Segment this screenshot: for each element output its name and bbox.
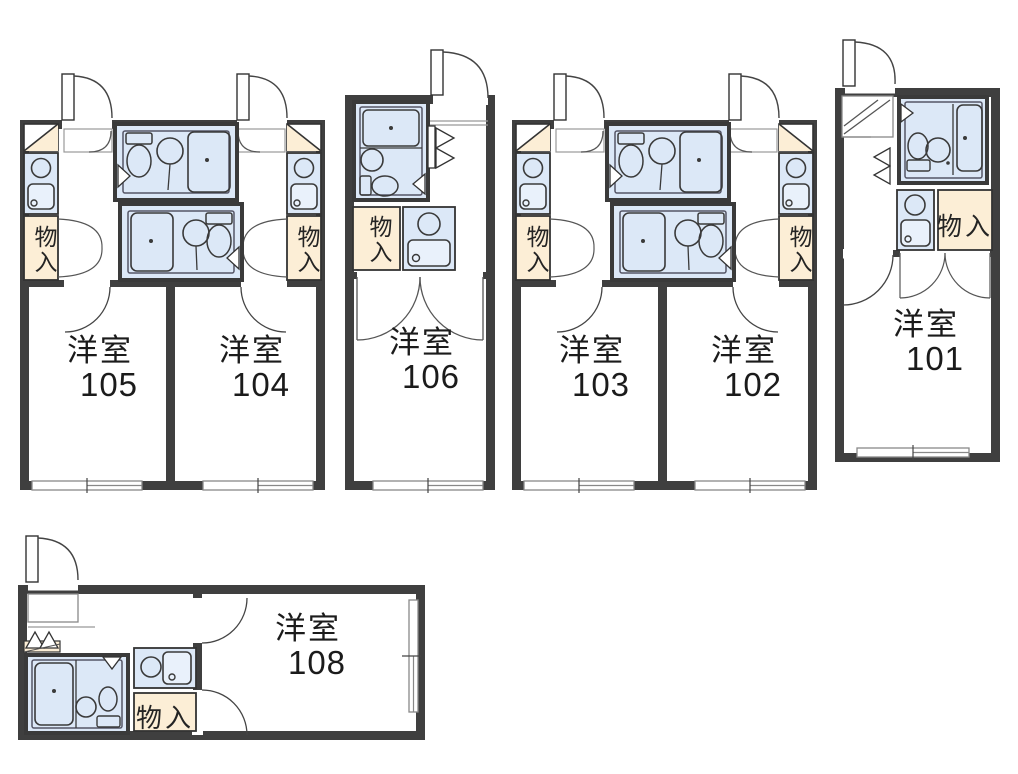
bathroom-101	[899, 97, 987, 183]
room-door-arc-101	[843, 255, 893, 305]
kitchen-101	[897, 190, 934, 250]
room-label-103: 洋室103	[517, 334, 667, 403]
room-number-101: 101	[860, 341, 1010, 377]
window-108	[402, 600, 421, 712]
folding-door-101	[874, 148, 890, 184]
room-label-102: 洋室102	[669, 334, 819, 403]
room-number-106: 106	[356, 359, 506, 395]
room-label-101: 洋室101	[851, 308, 1001, 377]
floorplan-canvas: 洋室105 洋室104 洋室106 洋室103 洋室102 洋室101 洋室10…	[0, 0, 1018, 774]
room-type-108: 洋室	[275, 611, 341, 646]
storage-label-108: 物入	[134, 698, 196, 735]
unit-block-103-102	[516, 74, 813, 493]
shoe-cabinet-108	[28, 594, 95, 627]
bathroom-108	[26, 655, 128, 733]
window-106	[373, 478, 483, 493]
room-number-103: 103	[526, 367, 676, 403]
room-opening-101a	[843, 249, 893, 259]
storage-label-105: 物入	[29, 220, 55, 280]
unit-block-106	[349, 50, 491, 493]
storage-label-104: 物入	[292, 220, 318, 280]
room-type-103: 洋室	[559, 333, 625, 368]
room-number-108: 108	[242, 645, 392, 681]
room-number-102: 102	[678, 367, 828, 403]
storage-label-103: 物入	[521, 220, 547, 280]
room-type-104: 洋室	[219, 333, 285, 368]
room-label-104: 洋室104	[177, 334, 327, 403]
closet-doors-101	[900, 253, 990, 298]
room-number-104: 104	[186, 367, 336, 403]
shoe-cabinet-101	[842, 96, 893, 137]
room-label-108: 洋室108	[233, 612, 383, 681]
bathroom-106	[354, 102, 428, 200]
room-number-105: 105	[34, 367, 184, 403]
room-type-106: 洋室	[389, 325, 455, 360]
room-type-102: 洋室	[711, 333, 777, 368]
room-label-105: 洋室105	[25, 334, 175, 403]
room-type-101: 洋室	[893, 307, 959, 342]
kitchen-108	[134, 648, 196, 688]
room-type-105: 洋室	[67, 333, 133, 368]
folding-door-108	[24, 632, 60, 652]
kitchen-106	[403, 207, 455, 270]
room-door-arc-108b	[202, 690, 247, 735]
storage-label-102: 物入	[784, 220, 810, 280]
unit-block-101	[839, 40, 996, 460]
storage-label-106: 物入	[364, 210, 390, 270]
room-opening-108a	[192, 598, 203, 643]
room-label-106: 洋室106	[347, 326, 497, 395]
storage-label-101: 物入	[934, 207, 996, 243]
unit-block-105-104	[24, 74, 321, 493]
folding-closet-106	[428, 126, 454, 168]
entry-door-108	[26, 536, 78, 582]
